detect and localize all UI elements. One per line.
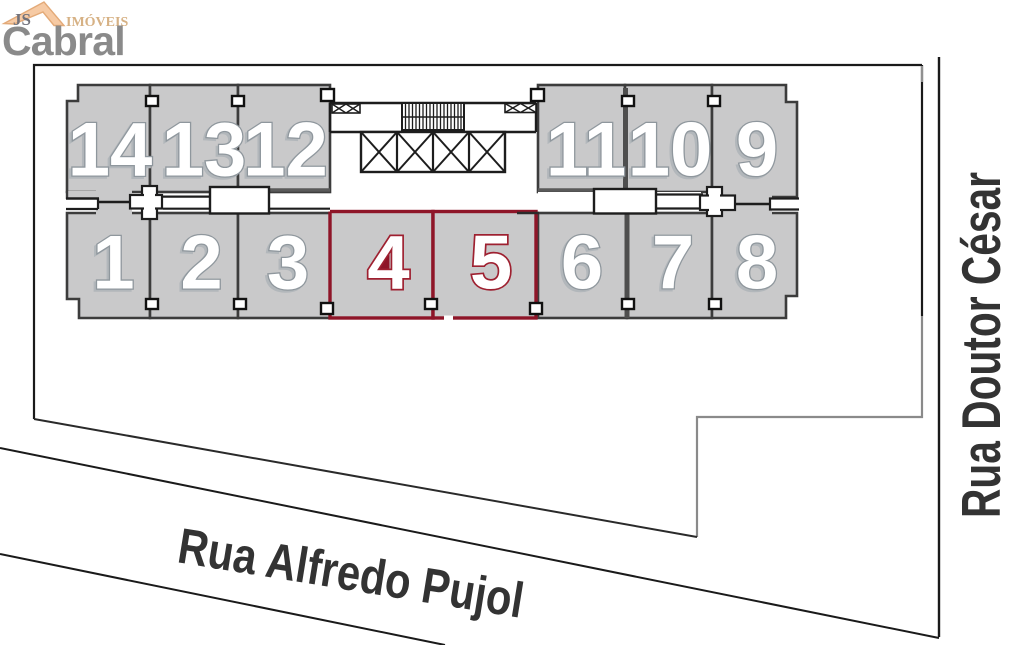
svg-text:2: 2 (180, 221, 222, 306)
svg-text:8: 8 (736, 221, 778, 306)
svg-text:1: 1 (92, 221, 134, 306)
svg-text:13: 13 (162, 108, 247, 193)
svg-text:6: 6 (561, 221, 603, 306)
svg-text:Rua Doutor César: Rua Doutor César (950, 172, 1012, 518)
svg-text:3: 3 (267, 221, 309, 306)
svg-text:14: 14 (68, 108, 153, 193)
svg-text:7: 7 (652, 221, 694, 306)
svg-text:11: 11 (546, 108, 626, 193)
svg-text:10: 10 (628, 108, 713, 193)
svg-text:Cabral: Cabral (2, 18, 125, 64)
svg-text:9: 9 (736, 108, 778, 193)
svg-text:4: 4 (367, 221, 409, 306)
svg-text:5: 5 (470, 221, 512, 306)
svg-text:12: 12 (243, 108, 328, 193)
